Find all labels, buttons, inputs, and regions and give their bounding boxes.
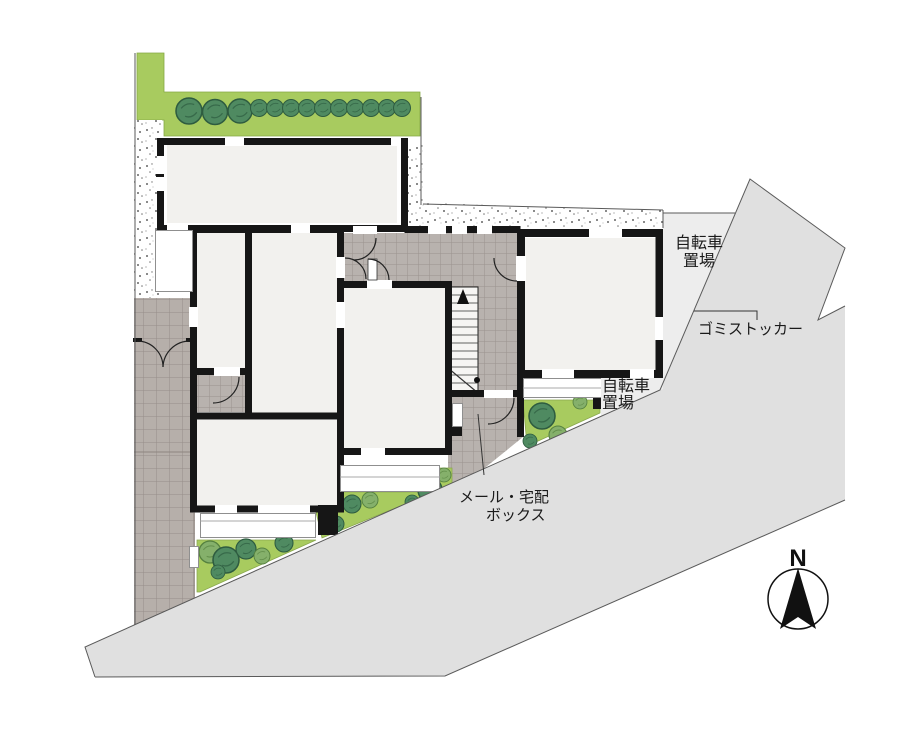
label-mail-box-line1: メール・宅配: [459, 489, 549, 506]
staircase: [448, 287, 480, 393]
site-plan-drawing: 自転車 置場 自転車 置場 ゴミストッカー メール・宅配 ボックス N: [0, 0, 902, 738]
door-leaf: [368, 259, 377, 280]
window-mullion-tick: [156, 174, 164, 177]
label-bicycle-lower-line2: 置場: [602, 394, 634, 412]
mail-delivery-box-unit: [453, 404, 463, 427]
label-bicycle-lower-line1: 自転車: [602, 377, 650, 395]
site-plan-page: 自転車 置場 自転車 置場 ゴミストッカー メール・宅配 ボックス N: [0, 0, 902, 738]
room-east: [525, 238, 656, 371]
room-northwest: [167, 145, 397, 223]
room-center-west: [252, 233, 337, 413]
porch-northwest: [156, 231, 193, 292]
room-west-small: [197, 233, 245, 368]
stair-newel-dot: [474, 377, 480, 383]
terrace-center: [341, 466, 440, 492]
terrace-southwest: [201, 514, 316, 538]
label-garbage-stocker: ゴミストッカー: [698, 320, 803, 338]
label-mail-box-line2: ボックス: [486, 507, 546, 524]
gate-post: [190, 547, 199, 568]
driveway-tiles: [134, 298, 195, 640]
north-arrow-letter: N: [789, 545, 806, 572]
room-southwest: [197, 420, 337, 506]
label-bicycle-upper-line2: 置場: [683, 252, 715, 270]
room-center: [344, 288, 445, 448]
label-bicycle-upper-line1: 自転車: [675, 234, 723, 252]
